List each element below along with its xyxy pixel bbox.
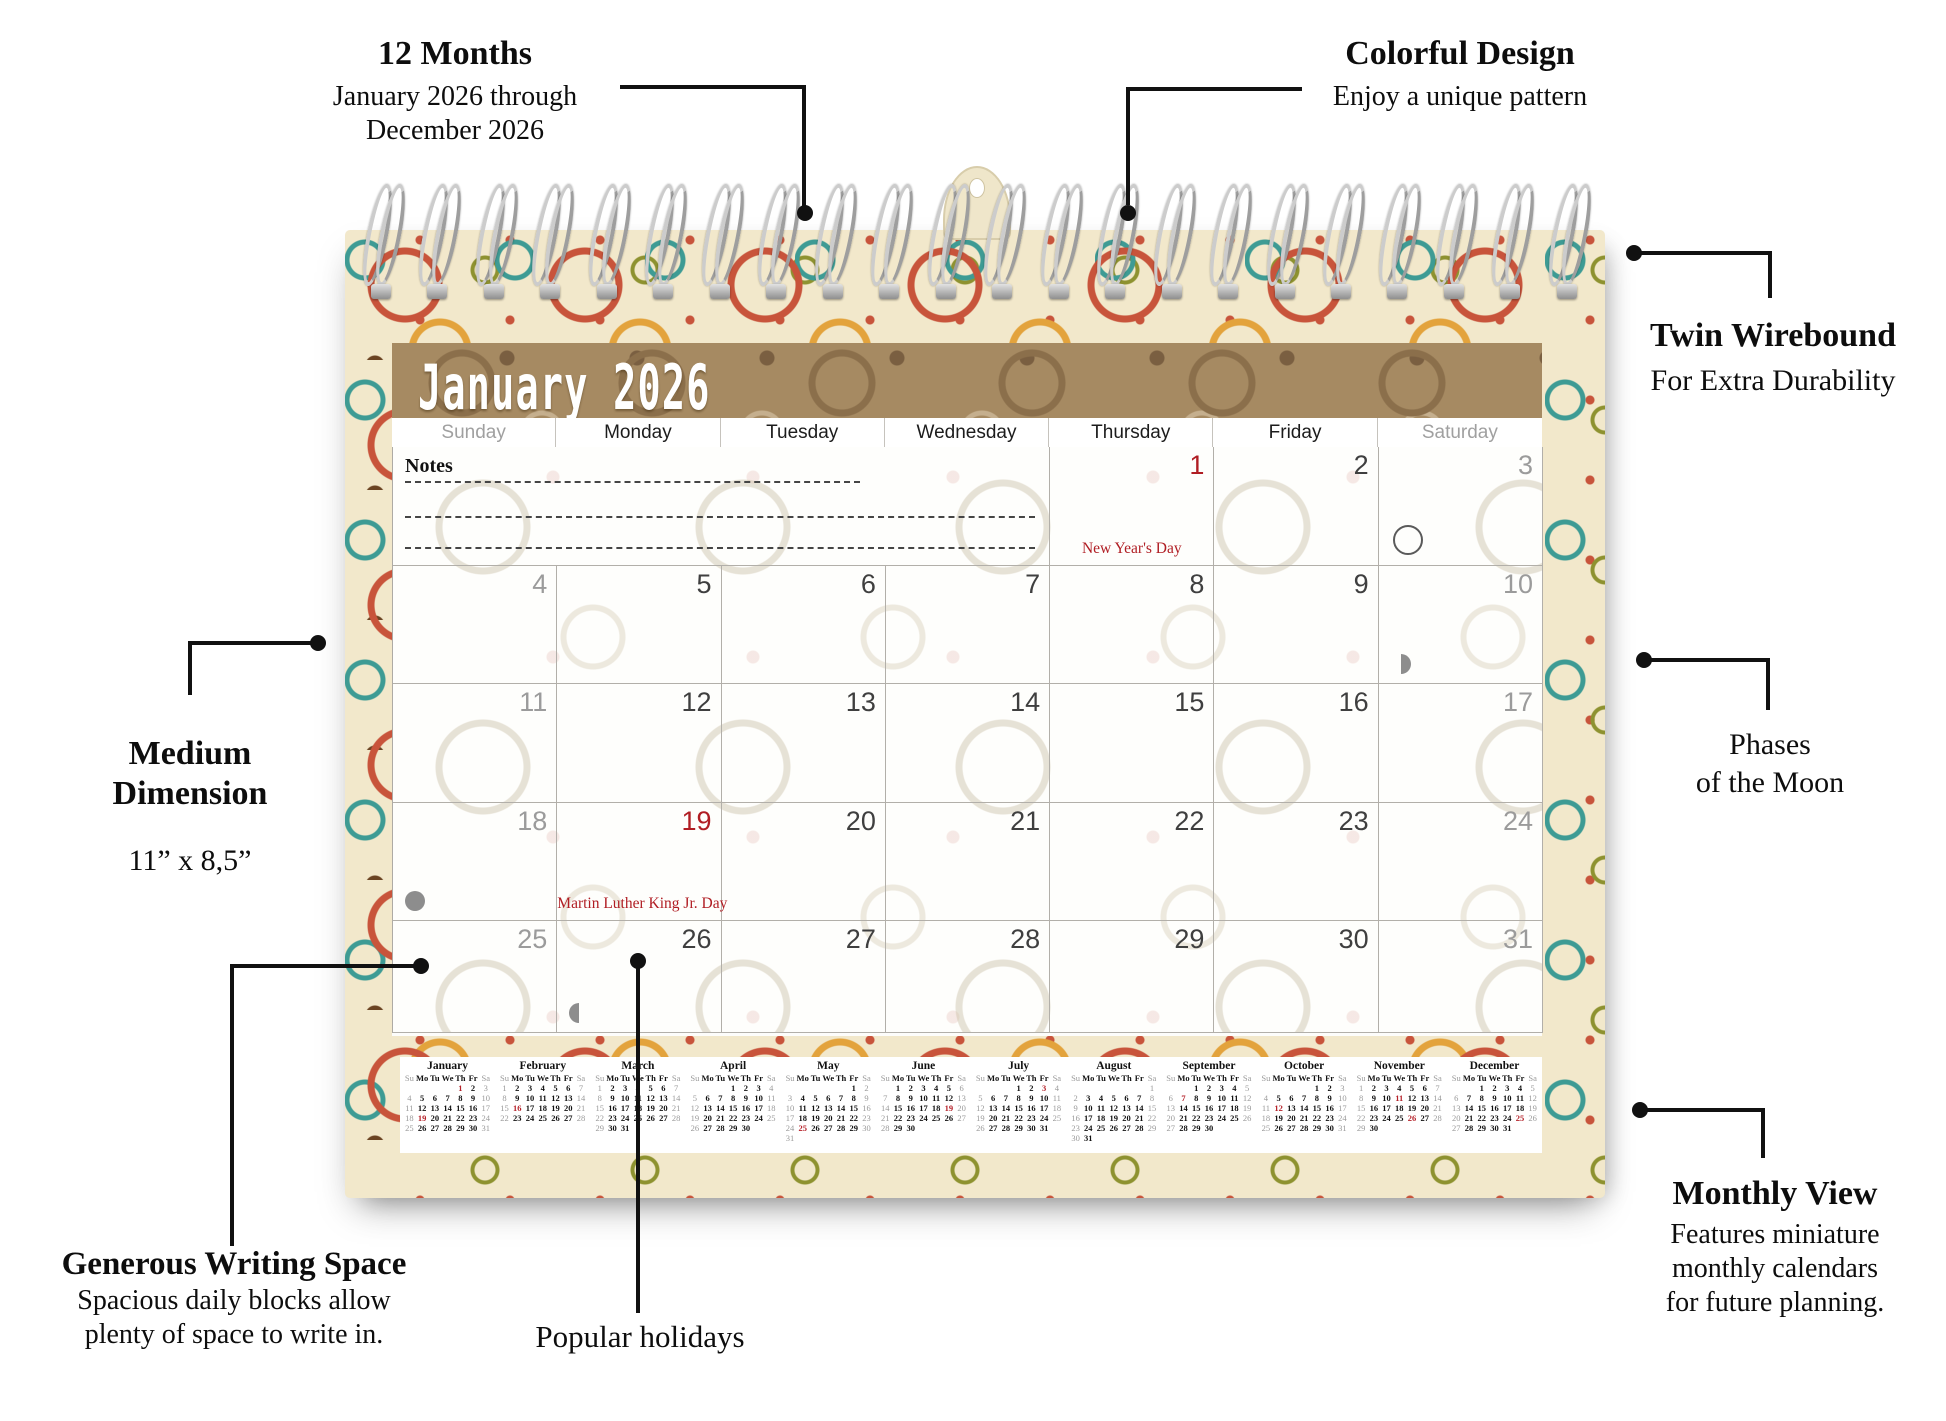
mini-day: 24	[1501, 1113, 1514, 1123]
mini-day: 28	[1463, 1123, 1476, 1133]
notes-line	[405, 516, 1035, 518]
mini-day	[1120, 1133, 1133, 1143]
mini-day: 11	[1228, 1093, 1241, 1103]
day-number: 24	[1503, 806, 1533, 837]
mini-day: 11	[1514, 1093, 1527, 1103]
mini-day: 17	[524, 1103, 537, 1113]
mini-day	[689, 1083, 702, 1093]
mini-day: 10	[1215, 1093, 1228, 1103]
wire-clamp	[1162, 284, 1182, 299]
mini-day: 31	[784, 1133, 797, 1143]
mini-day: 8	[892, 1093, 905, 1103]
mini-day: 10	[1082, 1103, 1095, 1113]
callout-moon-phases: Phases of the Moon	[1630, 726, 1910, 802]
callout-title: Monthly View	[1612, 1174, 1938, 1214]
mini-dow: Th	[644, 1073, 657, 1083]
holiday-label: New Year's Day	[1050, 540, 1213, 558]
mini-day: 1	[847, 1083, 860, 1093]
day-cell-19: 19Martin Luther King Jr. Day	[557, 803, 721, 921]
mini-day: 27	[822, 1123, 835, 1133]
mini-dow: Fr	[657, 1073, 670, 1083]
mini-dow: Fr	[1228, 1073, 1241, 1083]
mini-dow: Tu	[904, 1073, 917, 1083]
mini-day	[441, 1083, 454, 1093]
mini-day: 22	[892, 1113, 905, 1123]
day-number: 25	[517, 924, 547, 955]
mini-day: 26	[1406, 1113, 1419, 1123]
mini-day: 20	[955, 1103, 968, 1113]
mini-day: 24	[1380, 1113, 1393, 1123]
mini-day: 3	[1082, 1093, 1095, 1103]
mini-day: 24	[524, 1113, 537, 1123]
mini-day	[955, 1123, 968, 1133]
mini-day: 20	[657, 1103, 670, 1113]
mini-month-grid: SuMoTuWeThFrSa12345678910111213141516171…	[1355, 1073, 1444, 1133]
callout-writing-space: Generous Writing Space Spacious daily bl…	[16, 1244, 452, 1352]
mini-day: 22	[593, 1113, 606, 1123]
mini-month-name: June	[879, 1059, 968, 1073]
mini-day: 22	[1311, 1113, 1324, 1123]
mini-day: 5	[1272, 1093, 1285, 1103]
mini-day: 6	[562, 1083, 575, 1093]
mini-day: 3	[1501, 1083, 1514, 1093]
mini-day: 26	[1272, 1123, 1285, 1133]
wire-clamp	[1387, 284, 1407, 299]
mini-day: 9	[739, 1093, 752, 1103]
mini-month-grid: SuMoTuWeThFrSa 1234567891011121314151617…	[403, 1073, 492, 1133]
mini-day	[917, 1123, 930, 1133]
mini-day: 6	[1120, 1093, 1133, 1103]
calendar-page: January 2026 SundayMondayTuesdayWednesda…	[392, 343, 1542, 1036]
mini-day: 12	[1241, 1093, 1254, 1103]
mini-day: 17	[1038, 1103, 1051, 1113]
mini-day: 7	[835, 1093, 848, 1103]
mini-dow: Mo	[1463, 1073, 1476, 1083]
mini-day: 2	[1203, 1083, 1216, 1093]
mini-day: 2	[1367, 1083, 1380, 1093]
mini-dow: Mo	[1177, 1073, 1190, 1083]
callout-line	[1638, 251, 1772, 255]
mini-day: 17	[752, 1103, 765, 1113]
callout-text: January 2026 through	[255, 80, 655, 114]
mini-day: 6	[822, 1093, 835, 1103]
mini-day: 23	[511, 1113, 524, 1123]
mini-day: 5	[1406, 1083, 1419, 1093]
mini-day: 1	[593, 1083, 606, 1093]
mini-dow: We	[441, 1073, 454, 1083]
mini-day: 12	[549, 1093, 562, 1103]
callout-text: plenty of space to write in.	[16, 1318, 452, 1352]
notes-line	[405, 481, 860, 483]
wire-clamp	[653, 284, 673, 299]
mini-dow: Fr	[1038, 1073, 1051, 1083]
mini-day: 20	[1418, 1103, 1431, 1113]
mini-day: 16	[1203, 1103, 1216, 1113]
callout-dot	[1120, 205, 1136, 221]
mini-day: 22	[1190, 1113, 1203, 1123]
mini-day: 9	[1367, 1093, 1380, 1103]
mini-day: 10	[524, 1093, 537, 1103]
callout-line	[1644, 1108, 1765, 1112]
mini-day	[428, 1083, 441, 1093]
callout-dot	[797, 205, 813, 221]
mini-month-november: NovemberSuMoTuWeThFrSa123456789101112131…	[1352, 1057, 1447, 1153]
mini-dow: We	[822, 1073, 835, 1083]
mini-day: 23	[860, 1113, 873, 1123]
mini-day: 21	[1000, 1113, 1013, 1123]
mini-day: 29	[1311, 1123, 1324, 1133]
mini-day: 2	[1323, 1083, 1336, 1093]
mini-day: 2	[1488, 1083, 1501, 1093]
mini-day: 11	[765, 1093, 778, 1103]
mini-day	[1380, 1123, 1393, 1133]
moon-phase-icon-new	[405, 891, 425, 911]
mini-day: 16	[1367, 1103, 1380, 1113]
mini-day: 21	[835, 1113, 848, 1123]
day-number: 26	[682, 924, 712, 955]
mini-day: 14	[1133, 1103, 1146, 1113]
weekday-header-friday: Friday	[1213, 418, 1377, 447]
mini-dow: Sa	[860, 1073, 873, 1083]
mini-day: 27	[1120, 1123, 1133, 1133]
mini-day: 17	[1501, 1103, 1514, 1113]
day-number: 13	[846, 687, 876, 718]
mini-day: 1	[727, 1083, 740, 1093]
mini-day: 20	[822, 1113, 835, 1123]
mini-day: 28	[670, 1113, 683, 1123]
mini-day	[1095, 1133, 1108, 1143]
mini-day: 18	[536, 1103, 549, 1113]
mini-day: 23	[1025, 1113, 1038, 1123]
mini-month-grid: SuMoTuWeThFrSa 1234567891011121314151617…	[1164, 1073, 1253, 1133]
mini-day: 29	[892, 1123, 905, 1133]
mini-day: 16	[1323, 1103, 1336, 1113]
callout-colorful-design: Colorful Design Enjoy a unique pattern	[1255, 34, 1665, 114]
mini-day	[1215, 1123, 1228, 1133]
day-number: 5	[697, 569, 712, 600]
mini-day: 12	[943, 1093, 956, 1103]
mini-dow: Su	[403, 1073, 416, 1083]
mini-day: 15	[1355, 1103, 1368, 1113]
mini-dow: Th	[835, 1073, 848, 1083]
mini-day: 22	[498, 1113, 511, 1123]
mini-day: 26	[974, 1123, 987, 1133]
mini-day: 6	[1164, 1093, 1177, 1103]
mini-day	[930, 1123, 943, 1133]
mini-day: 20	[1120, 1113, 1133, 1123]
mini-day: 24	[917, 1113, 930, 1123]
wire-clamp	[936, 284, 956, 299]
mini-day: 14	[441, 1103, 454, 1113]
wire-clamp	[484, 284, 504, 299]
callout-dot	[310, 635, 326, 651]
mini-day: 24	[784, 1123, 797, 1133]
mini-dow: Sa	[1431, 1073, 1444, 1083]
mini-day: 22	[727, 1113, 740, 1123]
month-title-bar: January 2026	[392, 343, 1542, 418]
mini-day: 19	[416, 1113, 429, 1123]
mini-day: 3	[479, 1083, 492, 1093]
callout-text: for future planning.	[1612, 1286, 1938, 1320]
mini-dow: Tu	[1285, 1073, 1298, 1083]
mini-day: 23	[606, 1113, 619, 1123]
mini-day: 23	[1323, 1113, 1336, 1123]
mini-months-strip: JanuarySuMoTuWeThFrSa 123456789101112131…	[400, 1057, 1542, 1153]
moon-phase-icon-last	[1391, 654, 1411, 674]
day-cell-30: 30	[1214, 921, 1378, 1033]
mini-day: 25	[765, 1113, 778, 1123]
mini-dow: Tu	[524, 1073, 537, 1083]
callout-line	[802, 85, 806, 207]
mini-day	[1406, 1123, 1419, 1133]
mini-day: 20	[1164, 1113, 1177, 1123]
callout-text: Spacious daily blocks allow	[16, 1284, 452, 1318]
mini-dow: We	[1393, 1073, 1406, 1083]
mini-day: 18	[1228, 1103, 1241, 1113]
day-cell-6: 6	[722, 566, 886, 684]
mini-day	[847, 1133, 860, 1143]
mini-dow: Sa	[1050, 1073, 1063, 1083]
mini-day: 26	[644, 1113, 657, 1123]
mini-day: 8	[498, 1093, 511, 1103]
mini-day: 3	[524, 1083, 537, 1093]
mini-day: 7	[670, 1083, 683, 1093]
mini-day: 15	[498, 1103, 511, 1113]
mini-dow: Th	[1025, 1073, 1038, 1083]
mini-day: 30	[467, 1123, 480, 1133]
mini-day: 21	[575, 1103, 588, 1113]
mini-day	[796, 1083, 809, 1093]
mini-day: 17	[1380, 1103, 1393, 1113]
callout-dot	[1632, 1102, 1648, 1118]
mini-day: 21	[1431, 1103, 1444, 1113]
mini-day: 13	[1450, 1103, 1463, 1113]
mini-dow: Th	[454, 1073, 467, 1083]
mini-day: 24	[1215, 1113, 1228, 1123]
mini-day	[879, 1083, 892, 1093]
mini-day: 17	[917, 1103, 930, 1113]
mini-day: 8	[1146, 1093, 1159, 1103]
callout-text: Features miniature	[1612, 1218, 1938, 1252]
mini-dow: Tu	[1000, 1073, 1013, 1083]
mini-day: 25	[1050, 1113, 1063, 1123]
mini-day: 1	[892, 1083, 905, 1093]
mini-day: 24	[1038, 1113, 1051, 1123]
callout-title: 12 Months	[255, 34, 655, 74]
mini-day	[1177, 1083, 1190, 1093]
mini-day: 7	[1298, 1093, 1311, 1103]
day-number: 4	[532, 569, 547, 600]
mini-month-september: SeptemberSuMoTuWeThFrSa 1234567891011121…	[1161, 1057, 1256, 1153]
mini-day: 13	[822, 1103, 835, 1113]
mini-dow: Mo	[1272, 1073, 1285, 1083]
mini-day: 13	[1285, 1103, 1298, 1113]
mini-day	[809, 1133, 822, 1143]
mini-day	[1431, 1123, 1444, 1133]
mini-day	[1146, 1133, 1159, 1143]
mini-day: 25	[403, 1123, 416, 1133]
callout-line	[620, 85, 806, 89]
day-cell-18: 18	[393, 803, 557, 921]
mini-month-august: AugustSuMoTuWeThFrSa 1234567891011121314…	[1066, 1057, 1161, 1153]
mini-day: 23	[1367, 1113, 1380, 1123]
mini-dow: Su	[1069, 1073, 1082, 1083]
mini-day	[1450, 1083, 1463, 1093]
mini-day: 5	[549, 1083, 562, 1093]
mini-day: 21	[1133, 1113, 1146, 1123]
mini-day: 18	[1095, 1113, 1108, 1123]
mini-day: 5	[943, 1083, 956, 1093]
wire-clamp	[823, 284, 843, 299]
mini-day: 9	[904, 1093, 917, 1103]
mini-day: 15	[1146, 1103, 1159, 1113]
day-cell-22: 22	[1050, 803, 1214, 921]
day-number: 21	[1010, 806, 1040, 837]
mini-day: 14	[1463, 1103, 1476, 1113]
mini-dow: Mo	[416, 1073, 429, 1083]
wire-clamp	[1444, 284, 1464, 299]
mini-day: 2	[606, 1083, 619, 1093]
mini-dow: Tu	[619, 1073, 632, 1083]
day-number: 30	[1339, 924, 1369, 955]
mini-day: 30	[1488, 1123, 1501, 1133]
mini-day: 9	[467, 1093, 480, 1103]
mini-dow: Mo	[892, 1073, 905, 1083]
mini-day: 3	[784, 1093, 797, 1103]
mini-dow: We	[1107, 1073, 1120, 1083]
mini-day: 29	[454, 1123, 467, 1133]
wire-clamp	[1218, 284, 1238, 299]
mini-day	[1120, 1083, 1133, 1093]
callout-dot	[413, 958, 429, 974]
notes-area: Notes	[393, 447, 1050, 566]
mini-day: 14	[670, 1093, 683, 1103]
mini-day: 25	[796, 1123, 809, 1133]
mini-day: 28	[835, 1123, 848, 1133]
mini-dow: Sa	[670, 1073, 683, 1083]
mini-day: 13	[1418, 1093, 1431, 1103]
mini-month-grid: SuMoTuWeThFrSa 1234567891011121314151617…	[784, 1073, 873, 1143]
mini-day: 25	[536, 1113, 549, 1123]
mini-month-grid: SuMoTuWeThFrSa12345678910111213141516171…	[498, 1073, 587, 1123]
mini-day: 1	[1475, 1083, 1488, 1093]
weekday-header-monday: Monday	[556, 418, 720, 447]
mini-day: 18	[765, 1103, 778, 1113]
wire-loop-pair	[1326, 183, 1356, 301]
wire-loop-pair	[818, 183, 848, 301]
mini-day: 25	[1514, 1113, 1527, 1123]
mini-day: 13	[987, 1103, 1000, 1113]
mini-day: 19	[689, 1113, 702, 1123]
mini-dow: Mo	[1082, 1073, 1095, 1083]
mini-dow: Su	[689, 1073, 702, 1083]
day-cell-16: 16	[1214, 684, 1378, 803]
mini-day: 26	[943, 1113, 956, 1123]
mini-month-name: January	[403, 1059, 492, 1073]
mini-day	[1228, 1123, 1241, 1133]
mini-day: 27	[955, 1113, 968, 1123]
mini-day	[657, 1123, 670, 1133]
mini-day: 4	[1095, 1093, 1108, 1103]
mini-day	[822, 1133, 835, 1143]
mini-dow: We	[1203, 1073, 1216, 1083]
wire-clamp	[1105, 284, 1125, 299]
day-number: 31	[1503, 924, 1533, 955]
mini-dow: Th	[1406, 1073, 1419, 1083]
mini-day: 18	[1393, 1103, 1406, 1113]
mini-day: 13	[428, 1103, 441, 1113]
mini-dow: Sa	[1336, 1073, 1349, 1083]
mini-day: 7	[714, 1093, 727, 1103]
mini-day: 27	[428, 1123, 441, 1133]
wire-loop-pair	[705, 183, 735, 301]
wire-clamp	[1049, 284, 1069, 299]
mini-day: 29	[847, 1123, 860, 1133]
mini-day: 16	[511, 1103, 524, 1113]
weekday-header-sunday: Sunday	[392, 418, 556, 447]
mini-dow: Fr	[1418, 1073, 1431, 1083]
mini-day: 30	[860, 1123, 873, 1133]
mini-dow: Sa	[479, 1073, 492, 1083]
mini-day: 11	[930, 1093, 943, 1103]
day-cell-9: 9	[1214, 566, 1378, 684]
mini-day: 11	[1050, 1093, 1063, 1103]
day-cell-11: 11	[393, 684, 557, 803]
mini-day	[809, 1083, 822, 1093]
mini-day: 21	[670, 1103, 683, 1113]
callout-title: Twin Wirebound	[1600, 316, 1946, 356]
day-cell-21: 21	[886, 803, 1050, 921]
mini-day	[1000, 1083, 1013, 1093]
day-number: 8	[1189, 569, 1204, 600]
mini-day	[701, 1083, 714, 1093]
mini-day: 27	[657, 1113, 670, 1123]
mini-day	[752, 1123, 765, 1133]
mini-day: 11	[536, 1093, 549, 1103]
mini-day: 2	[511, 1083, 524, 1093]
mini-day	[1107, 1083, 1120, 1093]
mini-day: 10	[917, 1093, 930, 1103]
wire-clamp	[879, 284, 899, 299]
callout-line	[1126, 87, 1130, 205]
mini-day: 27	[1418, 1113, 1431, 1123]
mini-day: 17	[1082, 1113, 1095, 1123]
mini-day: 14	[835, 1103, 848, 1113]
mini-day: 21	[441, 1113, 454, 1123]
wire-loop-pair	[1270, 183, 1300, 301]
mini-day: 16	[860, 1103, 873, 1113]
mini-day	[1393, 1123, 1406, 1133]
mini-day: 10	[1501, 1093, 1514, 1103]
callout-line	[1126, 87, 1302, 91]
mini-day: 19	[549, 1103, 562, 1113]
mini-day: 12	[689, 1103, 702, 1113]
mini-day: 11	[796, 1103, 809, 1113]
mini-month-grid: SuMoTuWeThFrSa 1234567891011121314151617…	[879, 1073, 968, 1133]
mini-dow: Tu	[1475, 1073, 1488, 1083]
mini-day: 5	[416, 1093, 429, 1103]
wire-loop-pair	[1213, 183, 1243, 301]
mini-day: 15	[847, 1103, 860, 1113]
mini-day	[943, 1123, 956, 1133]
mini-day: 15	[892, 1103, 905, 1113]
mini-day: 20	[562, 1103, 575, 1113]
mini-day: 30	[1203, 1123, 1216, 1133]
weekday-header-wednesday: Wednesday	[885, 418, 1049, 447]
mini-day	[1298, 1083, 1311, 1093]
mini-day: 21	[714, 1113, 727, 1123]
mini-day: 9	[1203, 1093, 1216, 1103]
